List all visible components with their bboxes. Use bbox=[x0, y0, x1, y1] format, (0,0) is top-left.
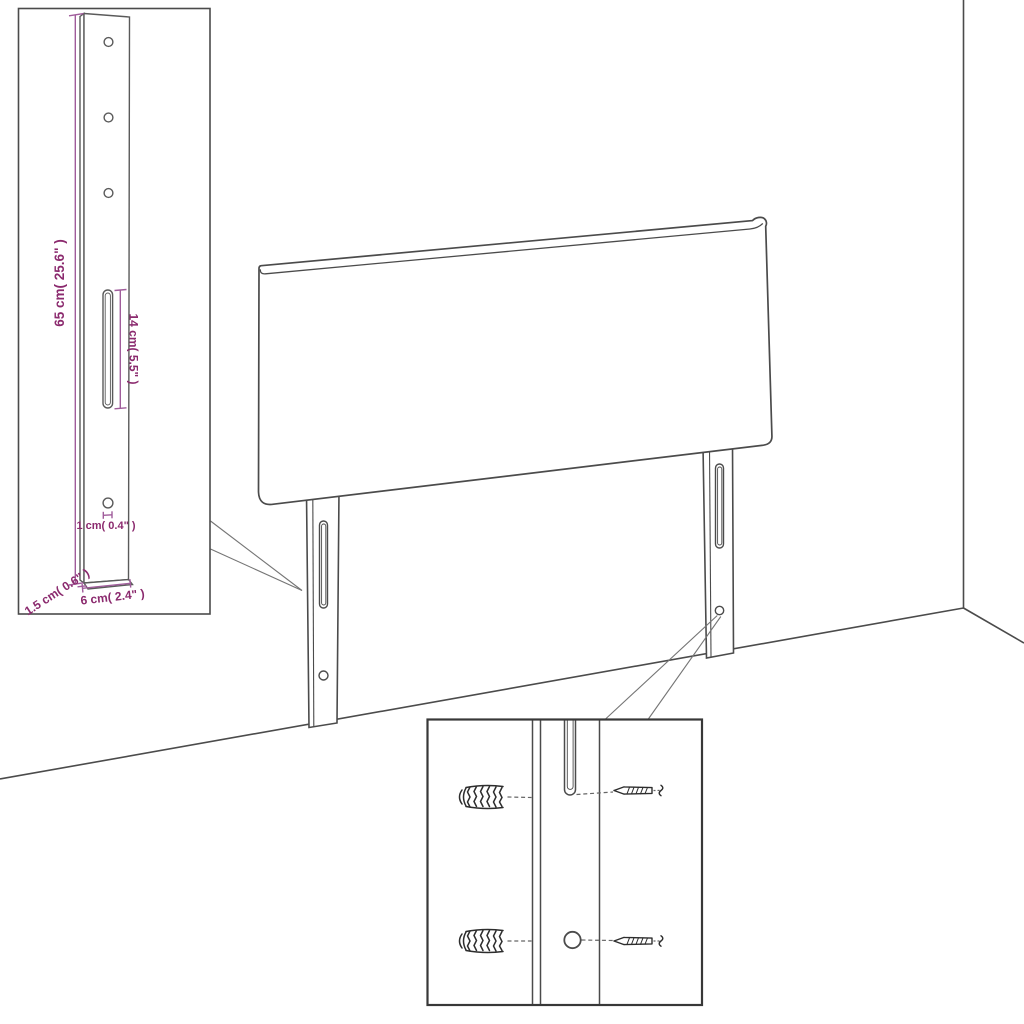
callout-lines bbox=[211, 521, 721, 720]
headboard-left-leg bbox=[307, 491, 340, 728]
dim-tick-width-left bbox=[82, 584, 83, 593]
panel-outline bbox=[259, 217, 772, 504]
dimension-label-slot: 14 cm( 5.5" ) bbox=[127, 313, 141, 384]
headboard-right-leg bbox=[703, 444, 734, 659]
assembly-diagram: 65 cm( 25.6" ) 14 cm( 5.5" ) 1 cm( 0.4" … bbox=[0, 0, 1024, 1024]
dim-tick-slot-bottom bbox=[115, 408, 127, 409]
inset-leg-drawing bbox=[80, 14, 133, 590]
right-leg-hole bbox=[715, 606, 723, 614]
left-leg-hole bbox=[319, 671, 328, 680]
inset-leg-hole-2 bbox=[104, 113, 113, 122]
inset-leg-hole-1 bbox=[104, 38, 113, 47]
dim-tick-width-right bbox=[130, 579, 131, 587]
floor-line-right bbox=[964, 608, 1024, 643]
inset-leg-hole-bottom bbox=[103, 498, 113, 508]
callout-line-hole-to-inset-1 bbox=[605, 616, 717, 720]
diagram-canvas: 65 cm( 25.6" ) 14 cm( 5.5" ) 1 cm( 0.4" … bbox=[0, 0, 1024, 1024]
right-leg-slot bbox=[716, 464, 724, 548]
inset-leg-slot bbox=[103, 290, 113, 408]
headboard-panel bbox=[259, 217, 772, 504]
dimension-label-hole: 1 cm( 0.4" ) bbox=[76, 520, 135, 532]
inset-leg-detail: 65 cm( 25.6" ) 14 cm( 5.5" ) 1 cm( 0.4" … bbox=[19, 9, 211, 619]
inset-mounting-detail bbox=[428, 720, 703, 1006]
dim-tick-slot-top bbox=[115, 290, 127, 291]
dimension-label-height: 65 cm( 25.6" ) bbox=[52, 239, 67, 326]
callout-line-hole-to-inset-2 bbox=[648, 617, 721, 720]
dim-line-hole bbox=[103, 515, 112, 516]
left-leg-slot bbox=[320, 521, 328, 608]
inset-leg-hole-3 bbox=[104, 189, 113, 198]
